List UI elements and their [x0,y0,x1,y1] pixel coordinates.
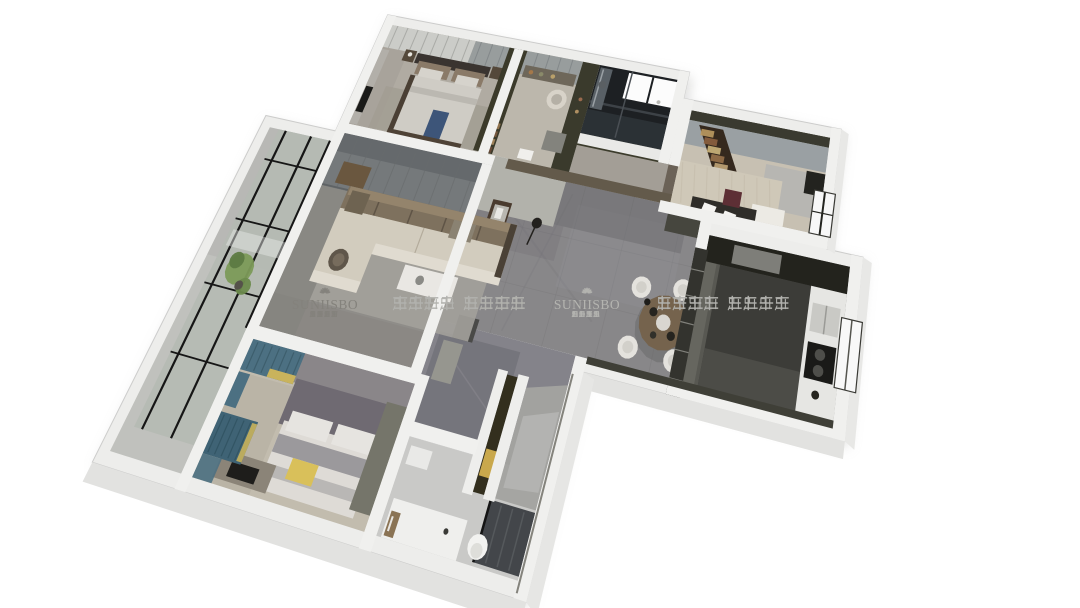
svg-text:SUNIISBO: SUNIISBO [292,297,358,312]
svg-text:SUNIISBO: SUNIISBO [554,297,620,312]
